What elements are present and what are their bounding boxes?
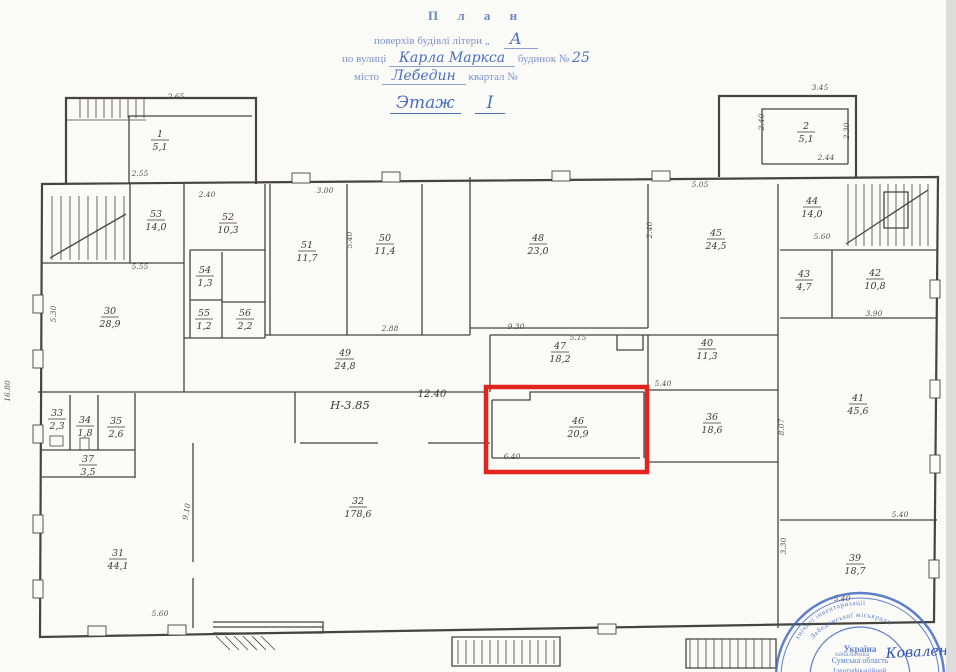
dimension-label: 9.10 [181, 502, 193, 520]
svg-text:56: 56 [239, 308, 251, 319]
svg-text:1,3: 1,3 [197, 278, 212, 289]
svg-text:2,2: 2,2 [236, 321, 252, 332]
svg-text:33: 33 [51, 408, 63, 419]
building-letter-value: А [504, 29, 538, 49]
room-label-35: 352,6 [107, 416, 125, 440]
room-label-47: 4718,2 [549, 341, 570, 365]
svg-text:47: 47 [553, 341, 567, 352]
room-label-34: 341,8 [76, 415, 94, 439]
floor-value: I [475, 93, 506, 114]
svg-text:44,1: 44,1 [106, 561, 128, 572]
room-label-45: 4524,5 [704, 228, 726, 252]
room-label-50: 5011,4 [374, 233, 395, 257]
room-labels: 15,125,13028,93144,132178,6332,3341,8352… [48, 121, 886, 577]
svg-text:11,7: 11,7 [296, 253, 318, 264]
dimension-label: 5.60 [814, 232, 831, 241]
dimension-label: 5.40 [892, 510, 909, 519]
svg-text:52: 52 [222, 212, 234, 223]
dimension-label: 2.44 [817, 153, 835, 162]
room-label-2: 25,1 [797, 121, 815, 145]
dimension-label: 5.40 [655, 379, 672, 388]
dimension-label: 8.07 [777, 418, 786, 435]
room-label-48: 4823,0 [526, 233, 548, 257]
dimension-label: 6.40 [504, 452, 521, 461]
stairs-top-right-stairwell [848, 184, 928, 246]
svg-text:178,6: 178,6 [344, 509, 371, 520]
dimension-label: 2.40 [757, 113, 766, 131]
outer-walls [40, 96, 938, 637]
signature-title: начальника [835, 650, 870, 658]
room-label-51: 5111,7 [296, 240, 318, 264]
dimension-label: 2.40 [198, 190, 216, 199]
room-label-31: 3144,1 [106, 548, 128, 572]
dimension-label: 5.55 [132, 262, 149, 271]
room-label-43: 434,7 [795, 269, 813, 293]
svg-text:28,9: 28,9 [98, 319, 120, 330]
svg-text:1,2: 1,2 [196, 321, 211, 332]
svg-text:46: 46 [571, 416, 584, 427]
svg-text:30: 30 [104, 306, 116, 317]
svg-text:55: 55 [198, 308, 210, 319]
dimension-label: 2.55 [131, 169, 149, 178]
building-letter-row: поверхів будівлі літери „А [374, 29, 672, 48]
room-label-49: 4924,8 [333, 348, 355, 372]
svg-text:49: 49 [338, 348, 351, 359]
svg-text:42: 42 [868, 268, 881, 279]
svg-text:51: 51 [301, 240, 313, 251]
svg-text:45,6: 45,6 [846, 406, 868, 417]
dimension-label: 3.45 [812, 83, 829, 92]
dimension-label: 3.30 [779, 537, 788, 554]
room-label-55: 551,2 [195, 308, 213, 332]
dimension-label: 5.15 [570, 333, 587, 342]
svg-text:11,3: 11,3 [696, 351, 717, 362]
plan-header: П л а н поверхів будівлі літери „А по ву… [332, 8, 672, 113]
dimension-label: 12.40 [418, 389, 447, 400]
svg-text:53: 53 [150, 209, 162, 220]
block-label: квартал № [468, 71, 517, 83]
street-value: Карла Маркса [389, 50, 515, 67]
street-row: по вулиці Карла Маркса будинок № 25 [342, 50, 672, 66]
svg-text:36: 36 [706, 412, 718, 423]
svg-text:43: 43 [797, 269, 810, 280]
svg-text:1: 1 [157, 129, 163, 140]
dimension-label: 5.30 [49, 305, 58, 322]
room-label-32: 32178,6 [344, 496, 371, 520]
stamp-id-label: Ідентифікаційний [833, 667, 886, 672]
toilet-fixture [50, 436, 63, 446]
room-label-41: 4145,6 [846, 393, 868, 417]
floor-row: ЭтажI [390, 93, 672, 113]
svg-text:5,1: 5,1 [798, 134, 813, 145]
svg-text:39: 39 [849, 553, 861, 564]
svg-text:31: 31 [112, 548, 124, 559]
svg-text:23,0: 23,0 [526, 246, 548, 257]
svg-text:5,1: 5,1 [152, 142, 167, 153]
dimension-label: 2.40 [645, 221, 654, 239]
svg-text:3,5: 3,5 [80, 467, 95, 478]
room-label-33: 332,3 [48, 408, 66, 432]
room-label-40: 4011,3 [696, 338, 717, 362]
room-label-37: 373,5 [79, 454, 97, 478]
dimension-label: 2.65 [167, 92, 185, 101]
room-label-56: 562,2 [236, 308, 254, 332]
city-value: Лебедин [382, 68, 466, 85]
svg-text:4,7: 4,7 [795, 282, 812, 293]
svg-text:45: 45 [709, 228, 722, 239]
svg-text:11,4: 11,4 [374, 246, 395, 257]
room-label-54: 541,3 [196, 265, 214, 289]
room-label-1: 15,1 [151, 129, 169, 153]
room-label-44: 4414,0 [801, 196, 822, 220]
dimension-label: 2.88 [381, 324, 399, 333]
dimension-label: 2.30 [842, 122, 851, 140]
svg-text:37: 37 [82, 454, 95, 465]
plan-title: П л а н [428, 8, 672, 24]
dimension-label: 9.30 [508, 322, 525, 331]
svg-text:48: 48 [531, 233, 544, 244]
svg-text:41: 41 [851, 393, 864, 404]
room-label-36: 3618,6 [701, 412, 722, 436]
room-label-42: 4210,8 [864, 268, 885, 292]
dimension-label: 5.40 [345, 231, 354, 248]
svg-text:50: 50 [379, 233, 391, 244]
toilet-fixture [80, 438, 89, 450]
svg-text:18,6: 18,6 [701, 425, 722, 436]
svg-text:10,3: 10,3 [217, 225, 238, 236]
svg-text:32: 32 [352, 496, 364, 507]
city-label: місто [354, 71, 379, 83]
svg-text:10,8: 10,8 [864, 281, 885, 292]
floor-label: Этаж [390, 93, 461, 114]
svg-text:14,0: 14,0 [145, 222, 166, 233]
room-label-30: 3028,9 [98, 306, 120, 330]
dimension-label: Н-3.85 [329, 398, 370, 412]
svg-text:44: 44 [805, 196, 818, 207]
svg-text:1,8: 1,8 [77, 428, 92, 439]
room-label-39: 3918,7 [844, 553, 866, 577]
svg-text:20,9: 20,9 [566, 429, 588, 440]
svg-text:34: 34 [79, 415, 91, 426]
house-label: будинок № [518, 53, 569, 65]
dimension-label: 5.60 [152, 609, 169, 618]
room-label-53: 5314,0 [145, 209, 166, 233]
dimension-label: 5.05 [692, 180, 709, 189]
street-label: по вулиці [342, 53, 386, 65]
svg-text:18,7: 18,7 [844, 566, 866, 577]
svg-text:2: 2 [802, 121, 809, 132]
interior-walls [38, 109, 938, 628]
city-row: місто Лебедин квартал № [354, 68, 672, 84]
dimension-labels: 2.652.552.403.005.402.885.052.409.305.15… [3, 83, 909, 618]
svg-text:24,5: 24,5 [704, 241, 726, 252]
room-label-52: 5210,3 [217, 212, 238, 236]
scan-edge-shadow [946, 0, 956, 672]
stairs-top-left-annex [66, 99, 146, 120]
building-letter-label: поверхів будівлі літери „ [374, 35, 490, 47]
dimension-label: 3.00 [317, 186, 334, 195]
house-number: 25 [572, 50, 590, 66]
svg-text:18,2: 18,2 [549, 354, 570, 365]
svg-text:24,8: 24,8 [333, 361, 355, 372]
room-label-46: 4620,9 [566, 416, 588, 440]
dimension-label: 3.90 [866, 309, 883, 318]
scanned-floor-plan-page: { "header": { "title": "П л а н", "line1… [0, 0, 956, 672]
dimension-label: 16.80 [3, 380, 12, 402]
svg-text:2,6: 2,6 [107, 429, 123, 440]
svg-text:40: 40 [700, 338, 713, 349]
svg-text:35: 35 [110, 416, 122, 427]
svg-text:2,3: 2,3 [48, 421, 64, 432]
svg-text:54: 54 [199, 265, 211, 276]
svg-text:14,0: 14,0 [801, 209, 822, 220]
